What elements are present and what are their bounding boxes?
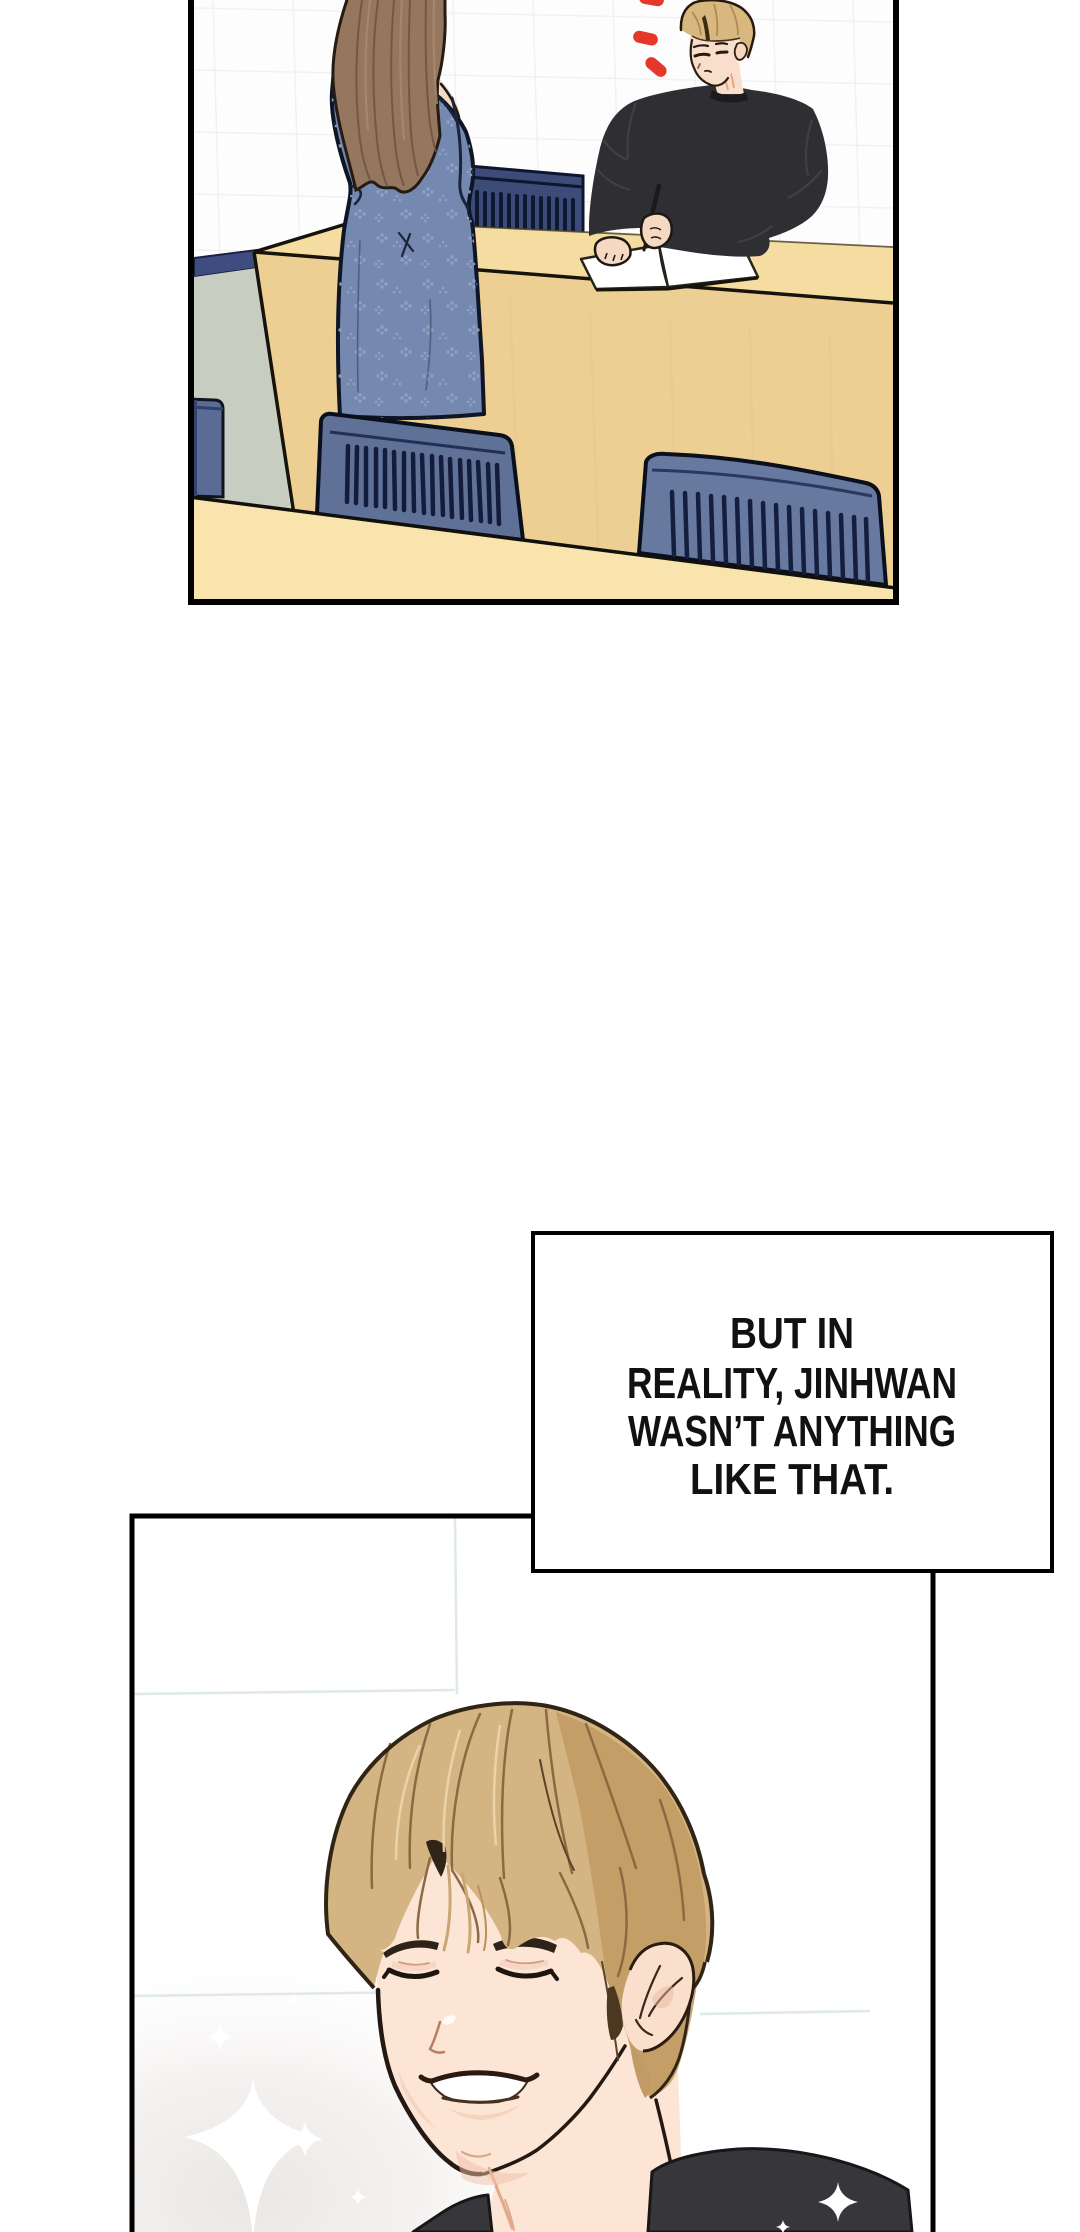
svg-text:REALITY, JINHWAN: REALITY, JINHWAN	[627, 1359, 957, 1408]
svg-text:LIKE THAT.: LIKE THAT.	[690, 1455, 894, 1504]
svg-text:WASN’T ANYTHING: WASN’T ANYTHING	[628, 1407, 956, 1456]
svg-text:BUT IN: BUT IN	[730, 1309, 854, 1358]
